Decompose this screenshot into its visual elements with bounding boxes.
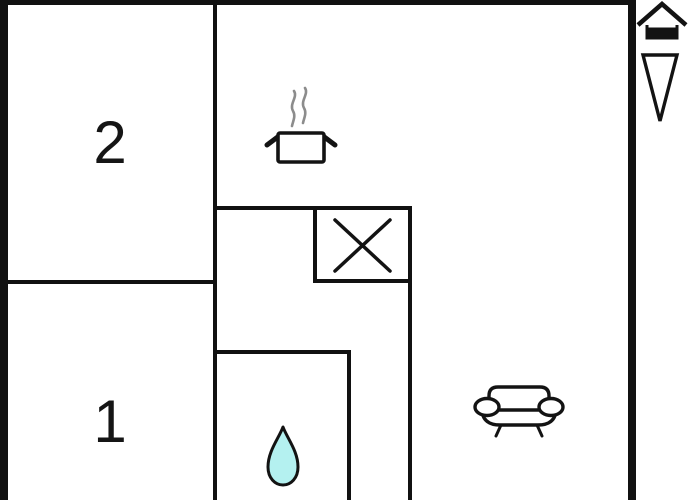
outer-wall-left <box>0 0 8 500</box>
bathroom-wall-right <box>347 350 351 500</box>
water-drop-icon <box>264 425 302 489</box>
outer-wall-top <box>0 0 636 5</box>
house-roof <box>638 4 686 25</box>
steam-line <box>303 88 306 123</box>
x-icon <box>317 210 408 279</box>
down-arrow-shape <box>643 55 677 121</box>
pot-body <box>278 133 324 162</box>
steam-line <box>292 91 295 126</box>
sofa-armrest-right <box>539 399 563 416</box>
water-drop-shape <box>268 427 298 485</box>
interior-wall-vertical <box>213 0 217 500</box>
room-2-label: 2 <box>60 108 160 178</box>
hallway-wall-vertical <box>408 279 412 500</box>
floorplan-canvas: 2 1 <box>0 0 700 500</box>
kitchen-bottom-wall <box>213 206 313 210</box>
sofa-armrest-left <box>475 399 499 416</box>
bathroom-wall-top <box>213 350 351 354</box>
shower-crossed-box <box>313 206 412 283</box>
sofa-icon <box>473 383 565 438</box>
rooms-divider-wall <box>0 280 217 284</box>
house-body-fill <box>649 28 676 37</box>
room-1-label: 1 <box>60 387 160 457</box>
outer-wall-right <box>628 0 636 500</box>
down-arrow-icon <box>640 52 680 124</box>
cooking-pot-icon <box>260 86 338 166</box>
house-icon <box>636 1 688 41</box>
